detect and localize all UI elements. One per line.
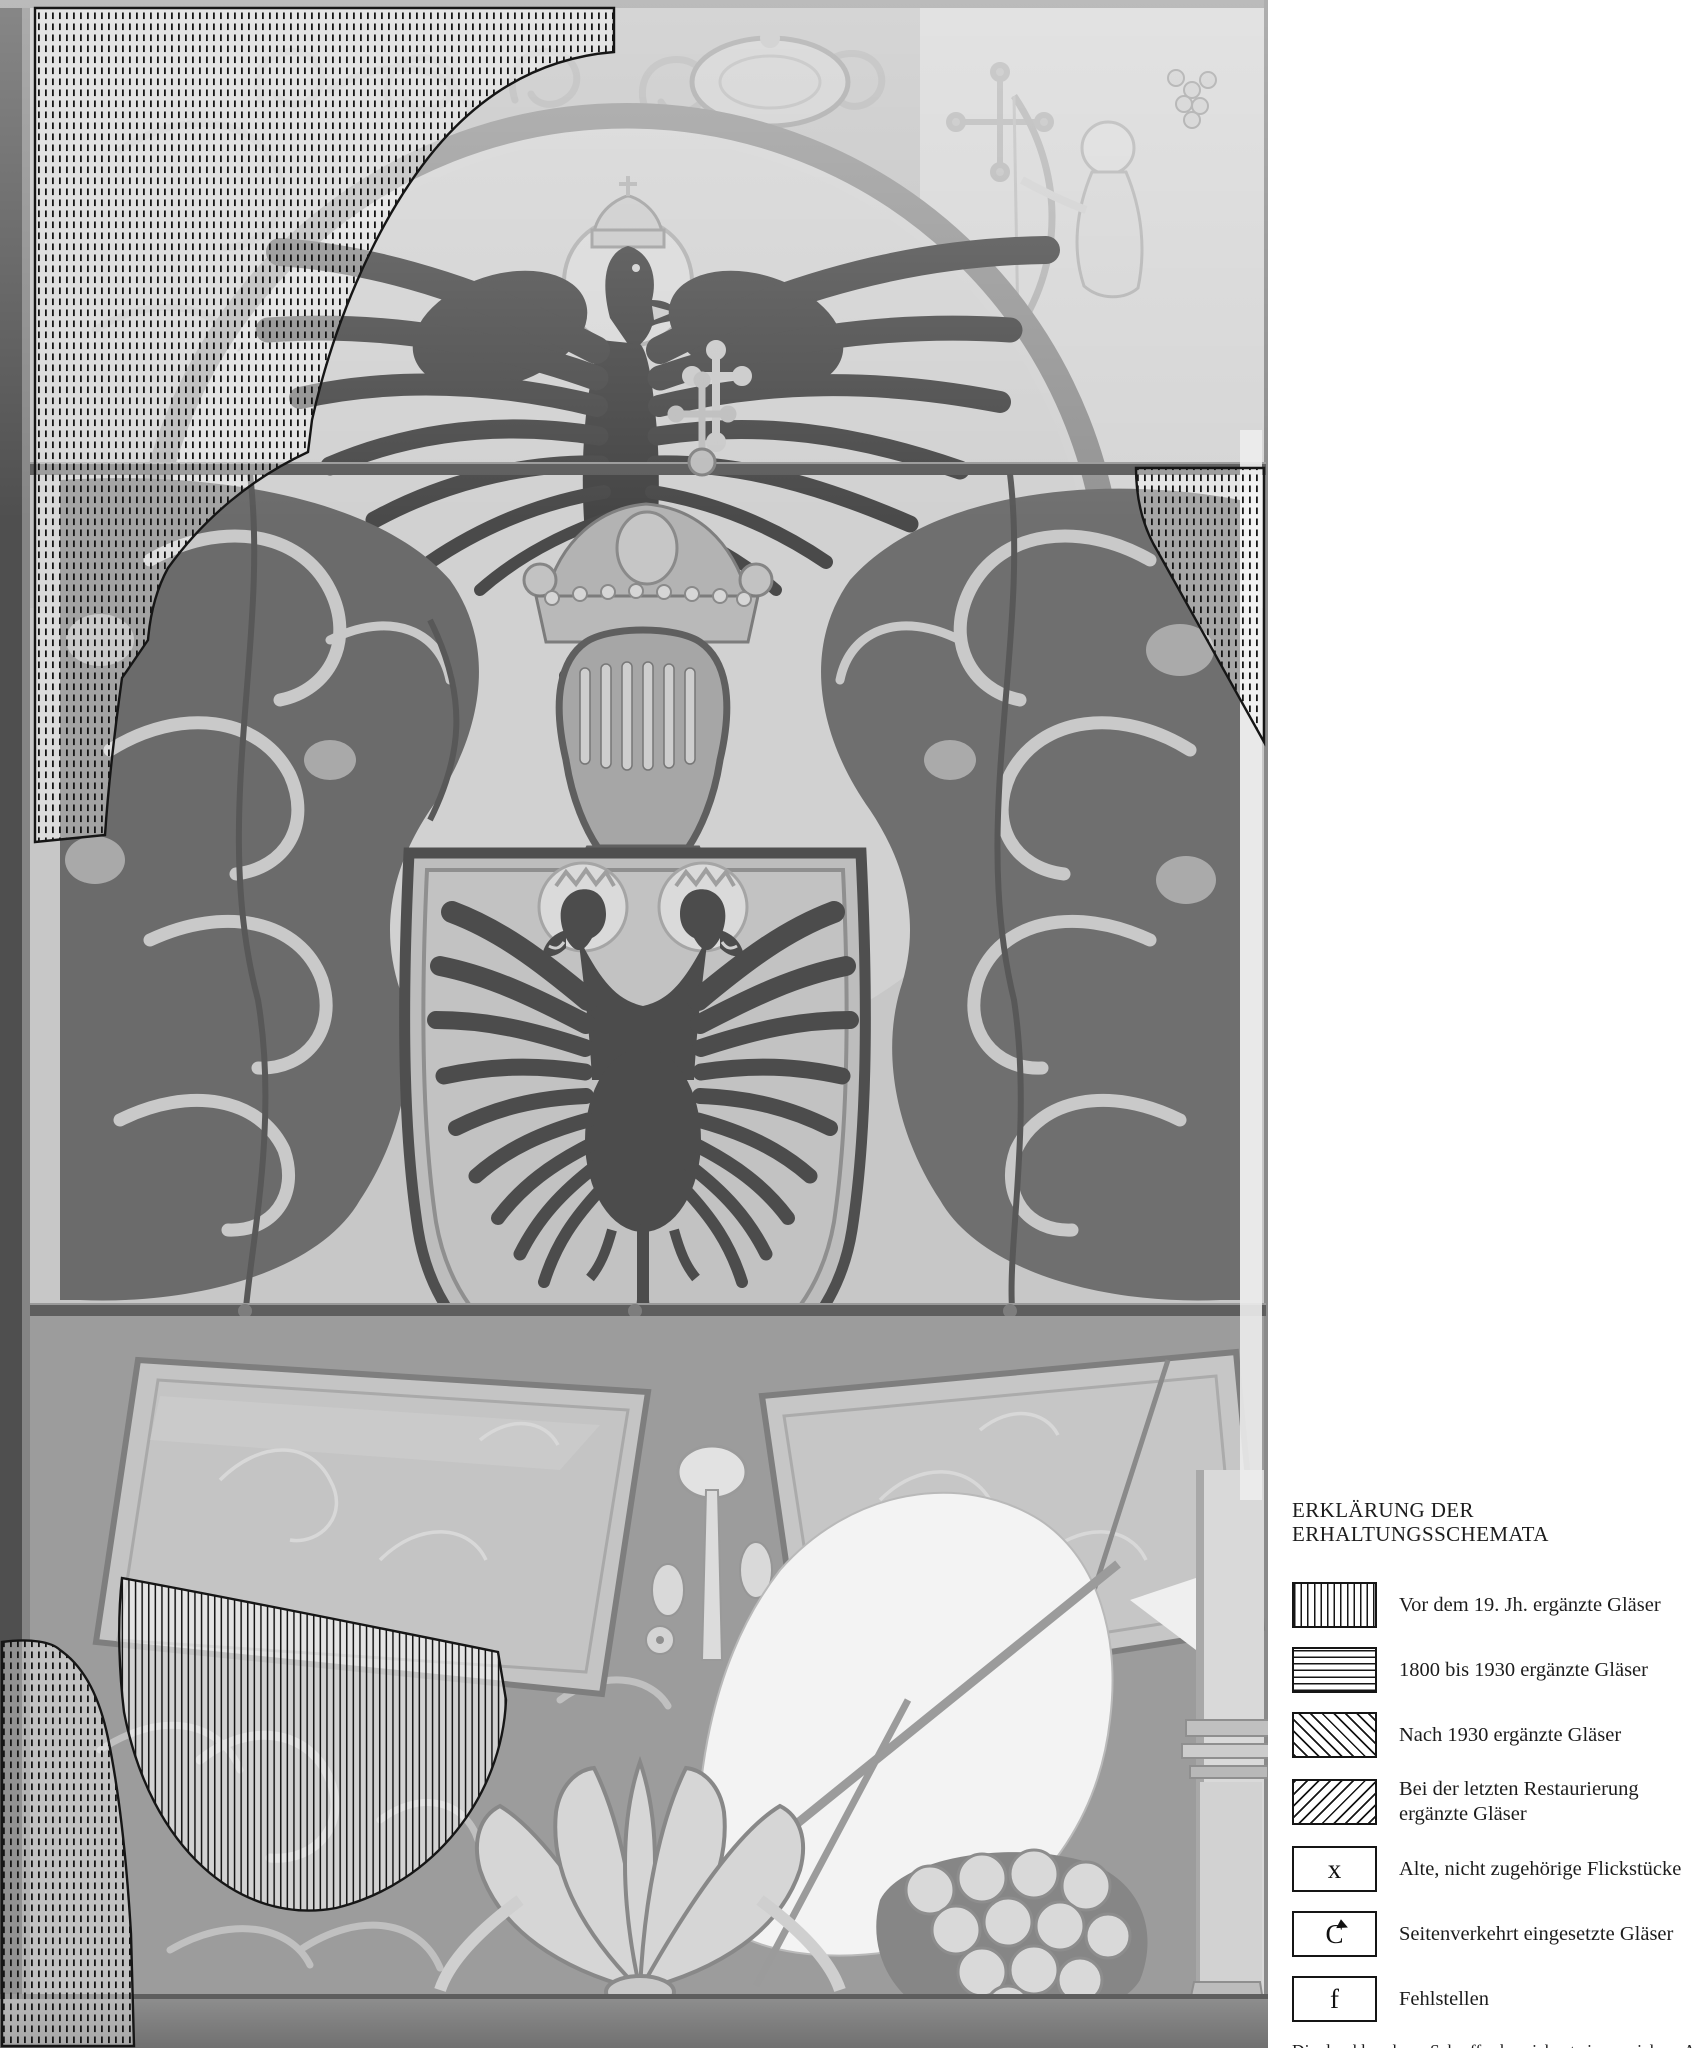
legend-footnote: Die durchbrochene Schraffur bezeichnet e…	[1292, 2041, 1708, 2048]
diagonal-forward-hatch-swatch-icon	[1292, 1779, 1377, 1825]
legend-item-pre19c: Vor dem 19. Jh. ergänzte Gläser	[1292, 1582, 1708, 1628]
window-sill	[0, 1996, 1268, 2048]
legend-item-fehlstellen: f Fehlstellen	[1292, 1976, 1708, 2022]
vertical-hatch-swatch-icon	[1292, 1582, 1377, 1628]
legend-item-1800-1930: 1800 bis 1930 ergänzte Gläser	[1292, 1647, 1708, 1693]
c-arrow-symbol-box: C	[1292, 1911, 1377, 1957]
f-symbol: f	[1330, 1986, 1339, 2013]
legend-item-post1930: Nach 1930 ergänzte Gläser	[1292, 1712, 1708, 1758]
horizontal-hatch-swatch-icon	[1292, 1647, 1377, 1693]
conservation-legend: ERKLÄRUNG DER ERHALTUNGSSCHEMATA Vor dem…	[1292, 1498, 1708, 2048]
legend-title: ERKLÄRUNG DER ERHALTUNGSSCHEMATA	[1292, 1498, 1708, 1546]
stained-glass-photo	[0, 0, 1268, 2048]
diagonal-back-hatch-swatch-icon	[1292, 1712, 1377, 1758]
saddle-bar-middle	[30, 1305, 1266, 1316]
stained-glass-panel	[0, 0, 1268, 2048]
legend-item-label: Alte, nicht zugehörige Flickstücke	[1399, 1857, 1681, 1882]
legend-item-label: Bei der letzten Restaurierung ergänzte G…	[1399, 1777, 1708, 1827]
legend-item-label: Vor dem 19. Jh. ergänzte Gläser	[1399, 1593, 1661, 1618]
legend-item-last-restoration: Bei der letzten Restaurierung ergänzte G…	[1292, 1777, 1708, 1827]
x-symbol-box: x	[1292, 1846, 1377, 1892]
legend-item-label: Fehlstellen	[1399, 1987, 1489, 2012]
x-symbol: x	[1328, 1856, 1342, 1883]
legend-item-seitenverkehrt: C Seitenverkehrt eingesetzte Gläser	[1292, 1911, 1708, 1957]
document-page: ERKLÄRUNG DER ERHALTUNGSSCHEMATA Vor dem…	[0, 0, 1708, 2048]
legend-item-flickstuecke: x Alte, nicht zugehörige Flickstücke	[1292, 1846, 1708, 1892]
legend-item-label: Seitenverkehrt eingesetzte Gläser	[1399, 1922, 1673, 1947]
f-symbol-box: f	[1292, 1976, 1377, 2022]
legend-item-label: Nach 1930 ergänzte Gläser	[1399, 1723, 1621, 1748]
legend-item-label: 1800 bis 1930 ergänzte Gläser	[1399, 1658, 1648, 1683]
